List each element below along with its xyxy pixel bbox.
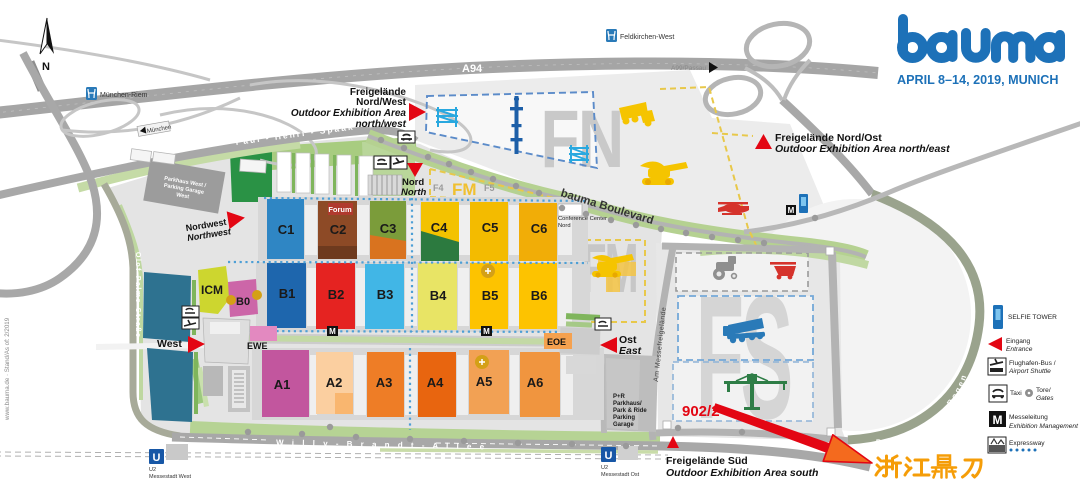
svg-text:Freigelände Süd: Freigelände Süd: [666, 455, 748, 467]
svg-text:B5: B5: [482, 288, 499, 303]
svg-text:B3: B3: [377, 287, 394, 302]
svg-text:Nord: Nord: [558, 223, 571, 229]
svg-text:B1: B1: [279, 286, 296, 301]
svg-text:Outdoor Exhibition Area north/: Outdoor Exhibition Area north/east: [775, 143, 950, 155]
svg-text:Eingang: Eingang: [1006, 338, 1031, 345]
svg-text:Airport Shuttle: Airport Shuttle: [1008, 368, 1051, 375]
svg-text:Outdoor Exhibition Area: Outdoor Exhibition Area: [291, 108, 407, 119]
svg-text:Expressway: Expressway: [1009, 440, 1045, 447]
svg-text:APRIL 8–14, 2019, MUNICH: APRIL 8–14, 2019, MUNICH: [897, 73, 1058, 87]
svg-text:Taxi: Taxi: [1010, 390, 1022, 397]
svg-text:C5: C5: [482, 220, 499, 235]
svg-text:Parking: Parking: [613, 415, 635, 421]
svg-text:West: West: [157, 338, 182, 350]
svg-text:Nord/West: Nord/West: [356, 97, 406, 108]
svg-text:F5: F5: [484, 183, 495, 193]
svg-text:M: M: [788, 206, 795, 215]
svg-text:C1: C1: [278, 222, 295, 237]
svg-text:C2: C2: [330, 222, 347, 237]
svg-text:north/west: north/west: [355, 119, 406, 130]
svg-text:C3: C3: [380, 221, 397, 236]
svg-text:U: U: [153, 452, 161, 464]
svg-text:A6: A6: [527, 375, 544, 390]
svg-text:A4: A4: [427, 375, 444, 390]
svg-text:Feldkirchen-West: Feldkirchen-West: [620, 34, 674, 41]
svg-text:U: U: [605, 450, 613, 462]
svg-text:C4: C4: [431, 220, 448, 235]
svg-text:München-Riem: München-Riem: [100, 92, 148, 99]
svg-text:Messestadt West: Messestadt West: [149, 474, 192, 480]
svg-text:FN: FN: [541, 92, 623, 185]
svg-text:A1: A1: [274, 377, 291, 392]
svg-text:Flughafen-Bus /: Flughafen-Bus /: [1009, 360, 1056, 367]
svg-text:EOE: EOE: [547, 337, 566, 347]
svg-text:M: M: [329, 327, 336, 336]
svg-text:EWE: EWE: [247, 341, 268, 351]
svg-text:M: M: [993, 413, 1003, 427]
svg-text:North: North: [401, 187, 427, 198]
svg-text:B2: B2: [328, 287, 345, 302]
svg-text:Messestadt Ost: Messestadt Ost: [601, 472, 640, 478]
svg-text:SELFIE TOWER: SELFIE TOWER: [1008, 314, 1057, 321]
svg-text:East: East: [619, 345, 642, 357]
svg-text:U2: U2: [601, 465, 608, 471]
svg-text:Exhibition Management: Exhibition Management: [1009, 423, 1079, 430]
svg-text:www.bauma.de · Stand/As of: 2/: www.bauma.de · Stand/As of: 2/2019: [4, 317, 11, 421]
svg-text:P+R: P+R: [613, 394, 626, 400]
svg-text:FM: FM: [452, 180, 477, 199]
svg-text:Outdoor Exhibition Area south: Outdoor Exhibition Area south: [666, 467, 818, 479]
svg-text:A94: A94: [462, 63, 483, 75]
svg-text:Entrance: Entrance: [1006, 346, 1033, 353]
svg-text:902/2: 902/2: [682, 403, 720, 420]
svg-text:B4: B4: [430, 288, 447, 303]
svg-text:Gates: Gates: [1036, 395, 1054, 402]
svg-text:A3: A3: [376, 375, 393, 390]
svg-text:M: M: [483, 327, 490, 336]
svg-text:Forum: Forum: [328, 205, 352, 214]
svg-text:Messeleitung: Messeleitung: [1009, 414, 1048, 421]
svg-text:B6: B6: [531, 288, 548, 303]
svg-text:Conference Center: Conference Center: [558, 216, 607, 222]
svg-text:B0: B0: [236, 296, 250, 308]
svg-text:Olof-Palme-Straße: Olof-Palme-Straße: [134, 252, 141, 339]
svg-text:ICM: ICM: [201, 283, 223, 297]
svg-text:Parkhaus/: Parkhaus/: [613, 401, 642, 407]
svg-text:Park & Ride: Park & Ride: [613, 408, 647, 414]
svg-text:A2: A2: [326, 375, 343, 390]
svg-text:F4: F4: [433, 183, 444, 193]
svg-text:A5: A5: [476, 374, 493, 389]
svg-text:C6: C6: [531, 221, 548, 236]
svg-text:U2: U2: [149, 467, 156, 473]
svg-text:Garage: Garage: [613, 422, 634, 428]
svg-text:Tore/: Tore/: [1036, 387, 1051, 394]
svg-text:A99/Passau: A99/Passau: [671, 65, 706, 72]
svg-text:N: N: [42, 61, 50, 73]
